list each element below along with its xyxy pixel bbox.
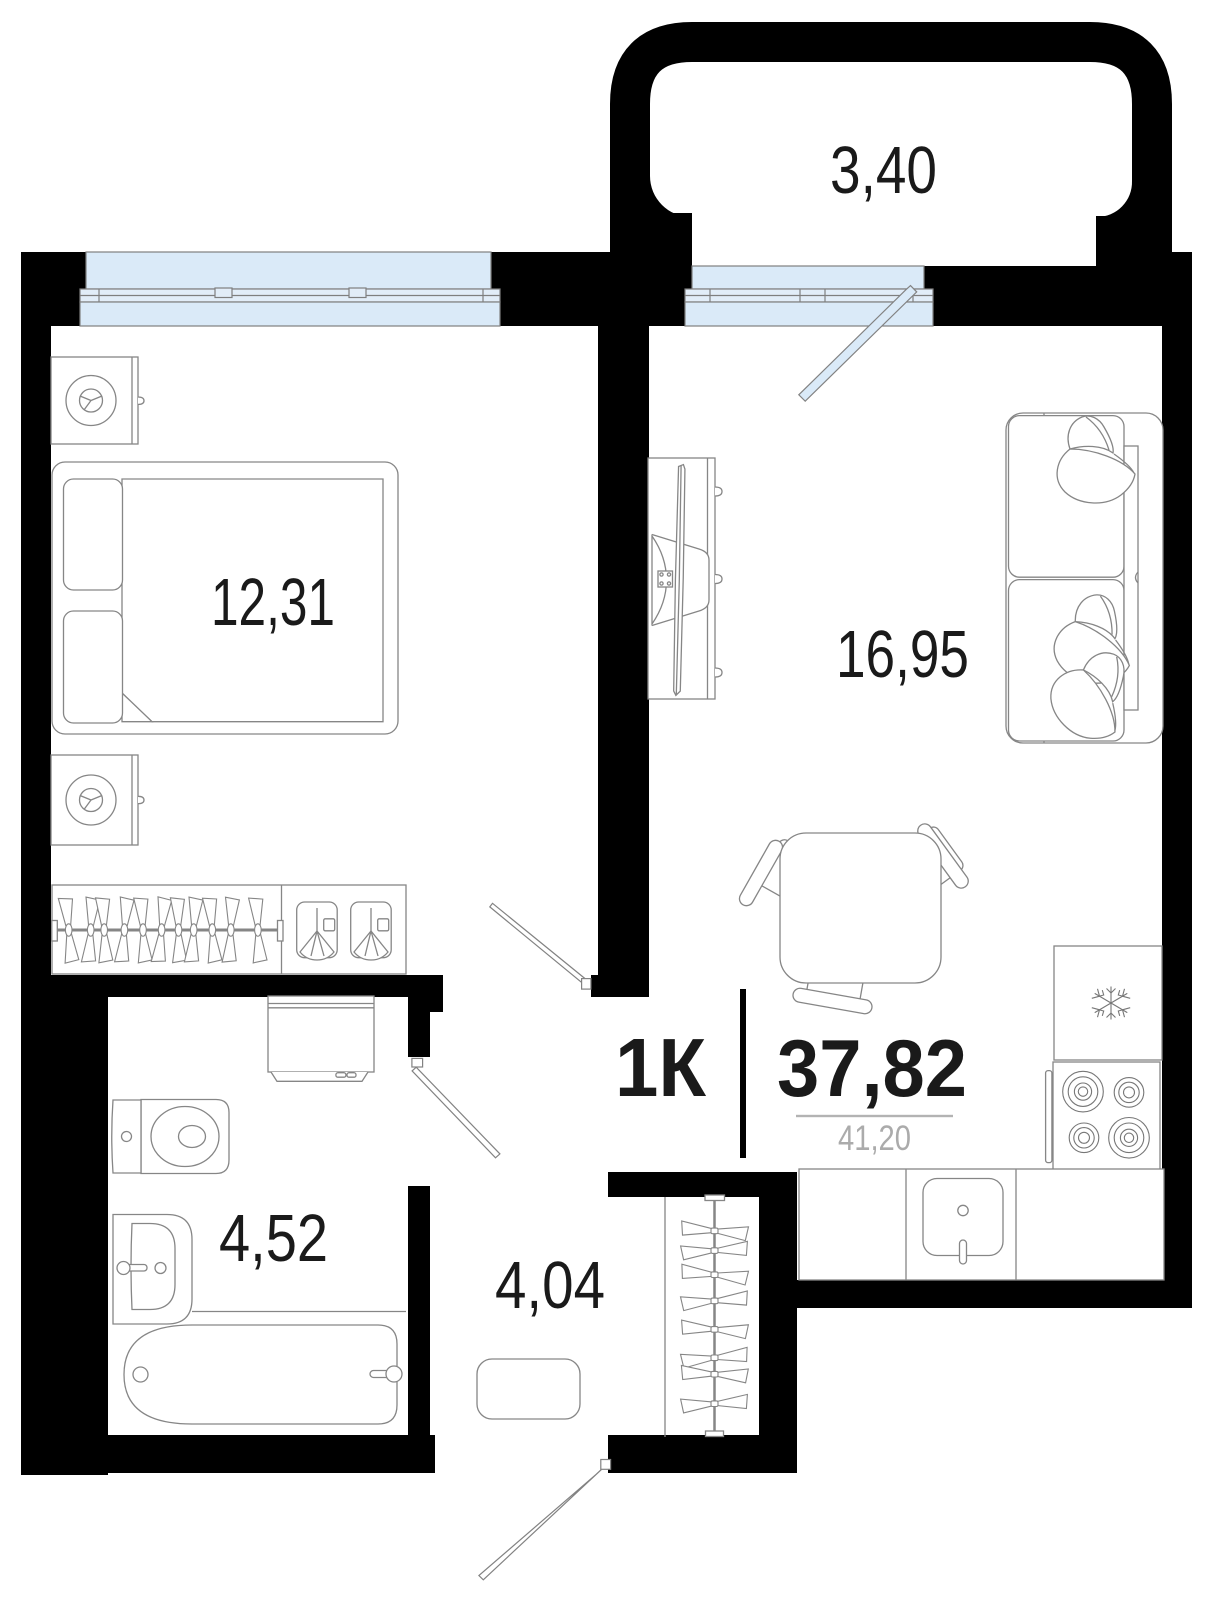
svg-text:4,04: 4,04 [495,1248,605,1323]
svg-text:4,52: 4,52 [219,1201,328,1276]
svg-text:41,20: 41,20 [838,1119,911,1158]
svg-text:16,95: 16,95 [836,617,969,692]
svg-text:1К: 1К [615,1021,706,1114]
svg-text:12,31: 12,31 [211,565,335,640]
svg-text:37,82: 37,82 [777,1024,967,1114]
svg-text:3,40: 3,40 [830,133,937,208]
